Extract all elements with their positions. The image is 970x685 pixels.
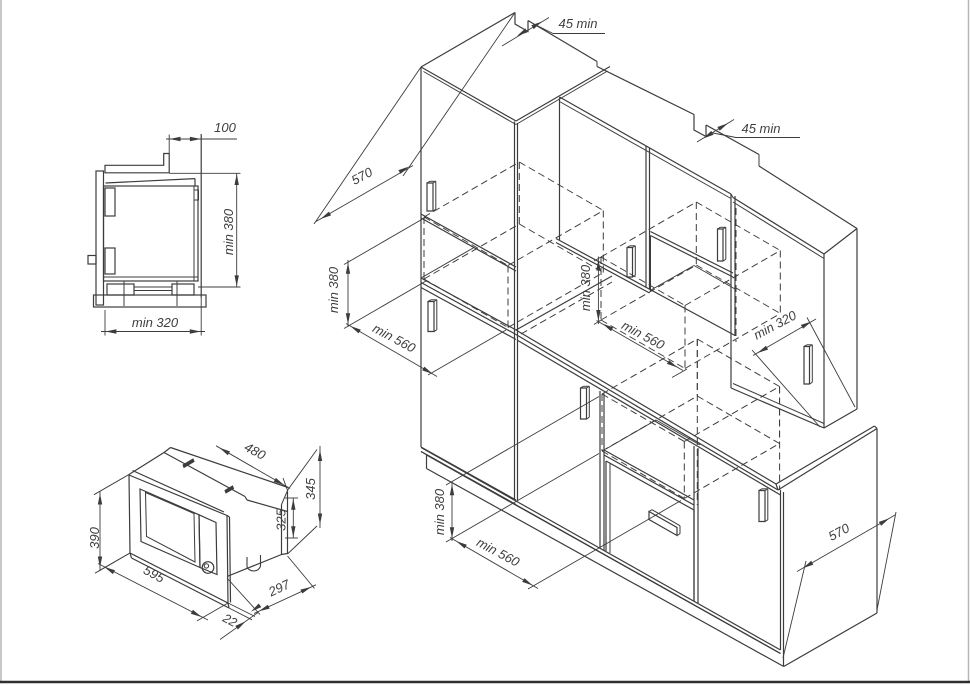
svg-text:min 380: min 380: [578, 264, 593, 311]
svg-text:min 560: min 560: [474, 535, 523, 570]
svg-text:min 320: min 320: [751, 307, 800, 342]
svg-text:595: 595: [141, 562, 168, 586]
svg-text:570: 570: [826, 520, 853, 544]
svg-text:min 560: min 560: [370, 321, 419, 356]
svg-text:100: 100: [214, 120, 236, 135]
svg-text:45 min: 45 min: [741, 121, 780, 136]
svg-text:min 380: min 380: [221, 208, 236, 255]
svg-text:390: 390: [87, 526, 102, 548]
svg-text:45 min: 45 min: [558, 16, 597, 31]
svg-text:min 380: min 380: [432, 488, 447, 535]
svg-text:297: 297: [265, 576, 293, 600]
svg-text:min 320: min 320: [132, 315, 179, 330]
svg-text:480: 480: [242, 439, 269, 463]
svg-text:345: 345: [303, 477, 318, 499]
svg-text:325: 325: [274, 508, 289, 530]
svg-text:min 380: min 380: [326, 266, 341, 313]
